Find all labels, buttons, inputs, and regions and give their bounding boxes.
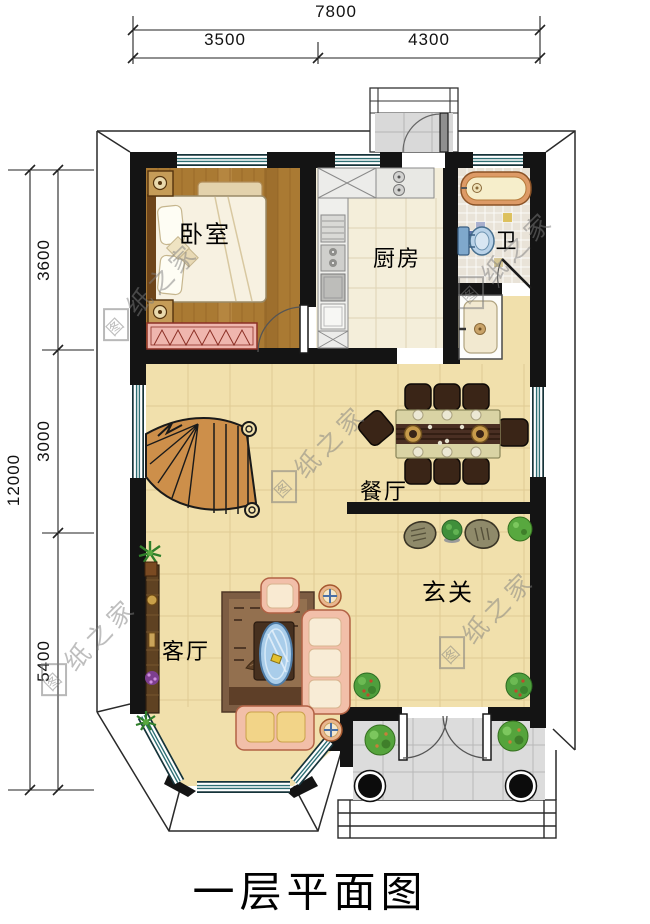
dim-top-total: 7800 bbox=[315, 2, 357, 22]
floorplan-page: 7800 3500 4300 12000 3600 3000 5400 卧室 厨… bbox=[0, 0, 650, 924]
room-label-foyer: 玄关 bbox=[422, 573, 474, 608]
dim-top-seg1: 3500 bbox=[204, 30, 246, 50]
wardrobe bbox=[147, 323, 257, 349]
porch-column-left bbox=[355, 771, 386, 802]
dim-top-seg2: 4300 bbox=[408, 30, 450, 50]
side-sofa bbox=[302, 610, 350, 714]
foyer-plant-left bbox=[354, 673, 380, 699]
room-label-bedroom: 卧室 bbox=[179, 215, 231, 250]
dim-left-seg3: 5400 bbox=[34, 640, 54, 682]
dim-left-seg1: 3600 bbox=[34, 239, 54, 281]
dim-left-total: 12000 bbox=[4, 454, 24, 506]
armchair bbox=[261, 578, 299, 613]
page-title: 一层平面图 bbox=[192, 859, 427, 920]
room-label-dining: 餐厅 bbox=[360, 474, 408, 506]
porch-column-right bbox=[506, 771, 537, 802]
porch-bush-left bbox=[365, 725, 395, 755]
pouf-bottom bbox=[320, 719, 342, 741]
foyer-plant-right bbox=[506, 673, 532, 699]
nightstand-bottom bbox=[148, 300, 173, 325]
room-label-living: 客厅 bbox=[162, 634, 210, 666]
porch-bush-right bbox=[498, 721, 528, 751]
vanity-sink bbox=[459, 295, 502, 359]
entry-steps bbox=[338, 800, 556, 838]
front-sofa bbox=[236, 706, 314, 750]
dim-left-seg2: 3000 bbox=[34, 420, 54, 462]
pouf-top bbox=[319, 585, 341, 607]
floorplan-drawing bbox=[0, 0, 650, 924]
nightstand-top bbox=[148, 171, 173, 196]
tv-console bbox=[145, 565, 159, 713]
coffee-table bbox=[254, 622, 294, 685]
room-label-kitchen: 厨房 bbox=[373, 241, 421, 273]
room-label-bath: 卫 bbox=[496, 225, 519, 255]
bathtub bbox=[461, 172, 531, 205]
toilet bbox=[458, 227, 494, 255]
